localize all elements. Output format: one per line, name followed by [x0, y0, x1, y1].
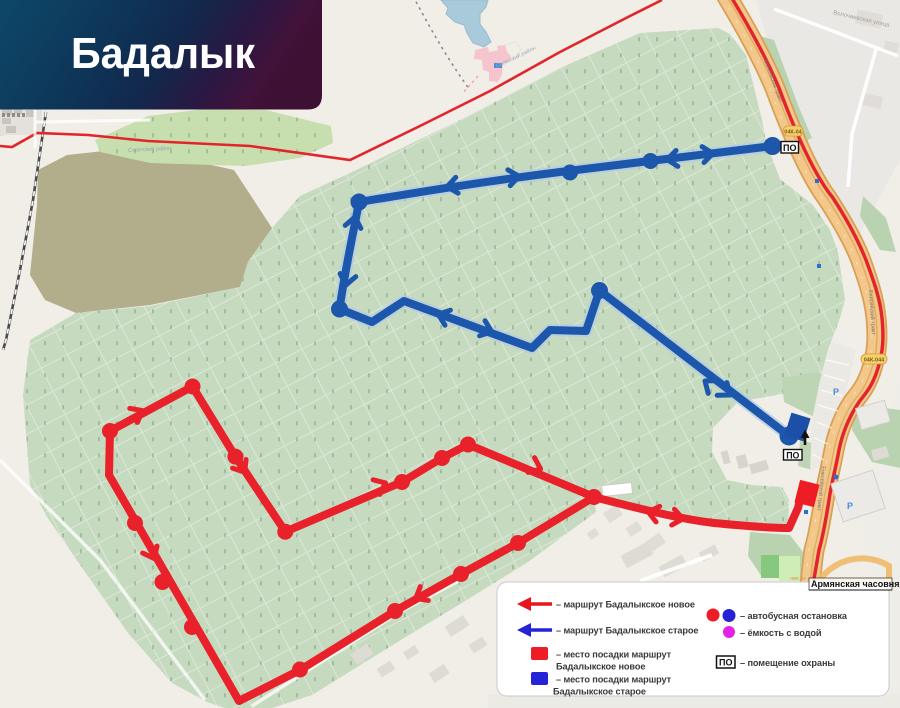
svg-text:P: P	[833, 387, 839, 397]
svg-text:– место посадки маршрут: – место посадки маршрут	[556, 650, 672, 660]
svg-text:04К-04: 04К-04	[784, 130, 802, 136]
svg-text:ПО: ПО	[783, 143, 796, 153]
svg-text:04К-044: 04К-044	[864, 358, 885, 364]
svg-text:ПО: ПО	[786, 450, 799, 460]
svg-text:ЛИК ЛА: ЛИК ЛА	[790, 576, 806, 581]
svg-text:– автобусная остановка: – автобусная остановка	[740, 611, 848, 621]
svg-text:ПО: ПО	[719, 658, 732, 668]
svg-text:Армянская часовня: Армянская часовня	[811, 579, 899, 589]
svg-text:Бадалыкское старое: Бадалыкское старое	[553, 687, 646, 697]
svg-text:– маршрут Бадалыкское новое: – маршрут Бадалыкское новое	[556, 600, 695, 610]
svg-text:– помещение охраны: – помещение охраны	[740, 658, 835, 668]
svg-text:– ёмкость с водой: – ёмкость с водой	[740, 628, 822, 638]
svg-text:– маршрут Бадалыкское старое: – маршрут Бадалыкское старое	[556, 626, 698, 636]
svg-text:Бадалык: Бадалык	[71, 30, 255, 78]
svg-text:Бадалыкское новое: Бадалыкское новое	[556, 662, 645, 672]
svg-text:P: P	[847, 501, 853, 511]
svg-text:– место посадки маршрут: – место посадки маршрут	[556, 675, 672, 685]
